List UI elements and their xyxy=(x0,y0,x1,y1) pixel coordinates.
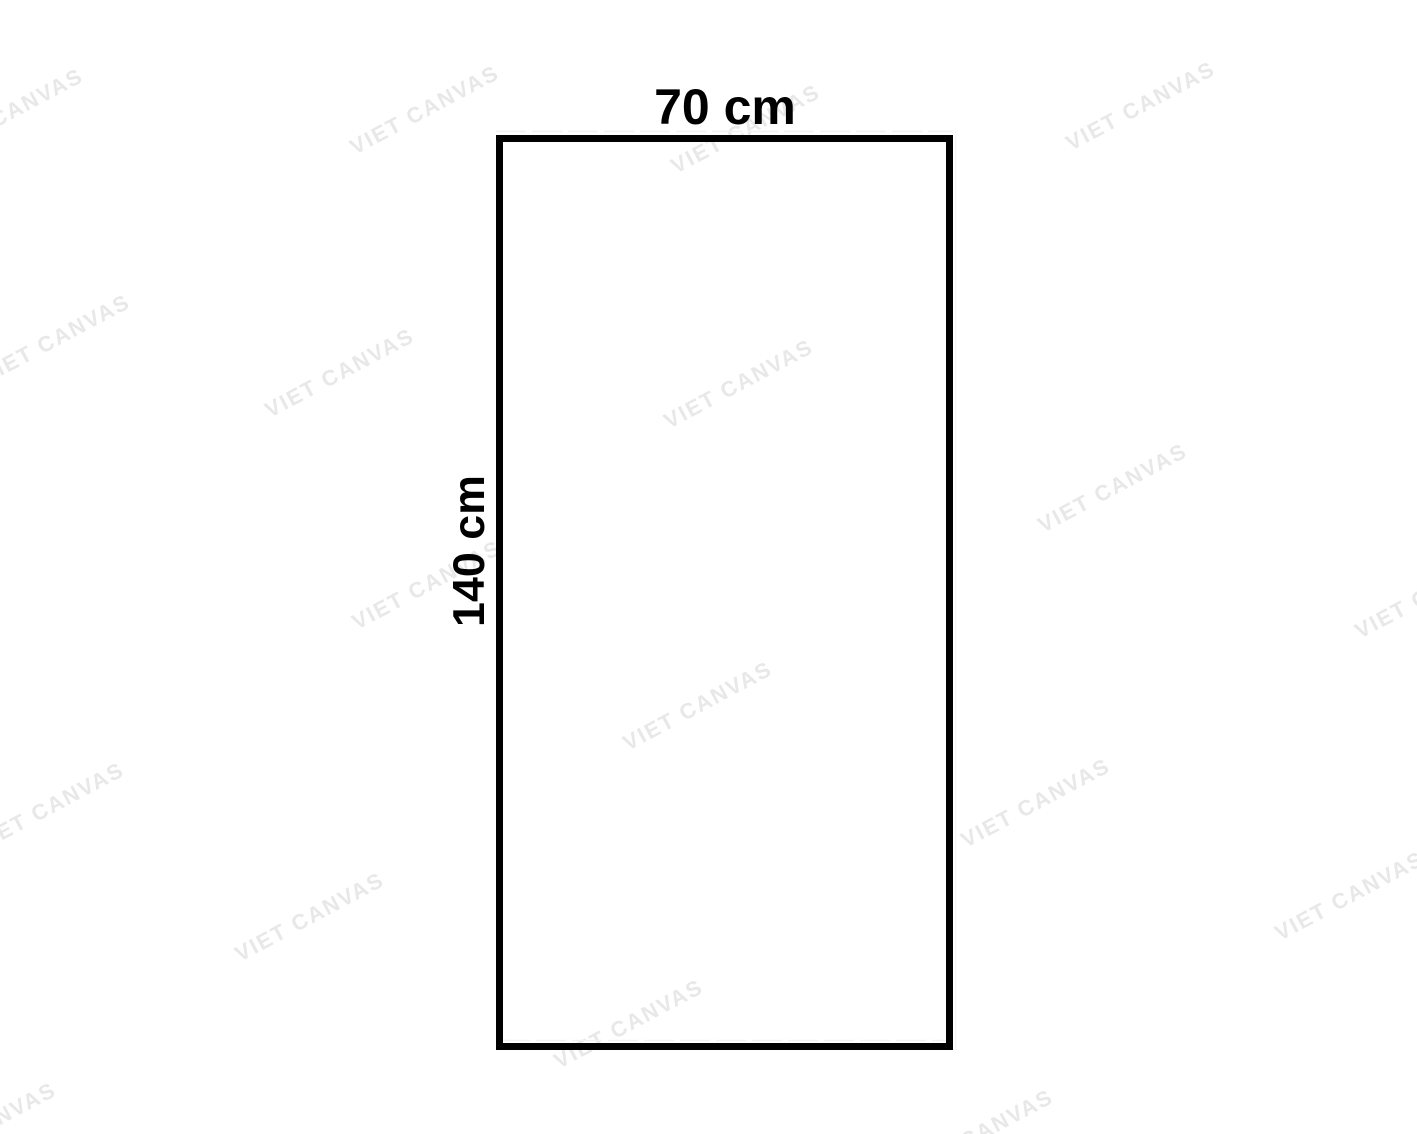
svg-text:70 cm: 70 cm xyxy=(654,79,796,135)
svg-text:140 cm: 140 cm xyxy=(444,475,494,627)
